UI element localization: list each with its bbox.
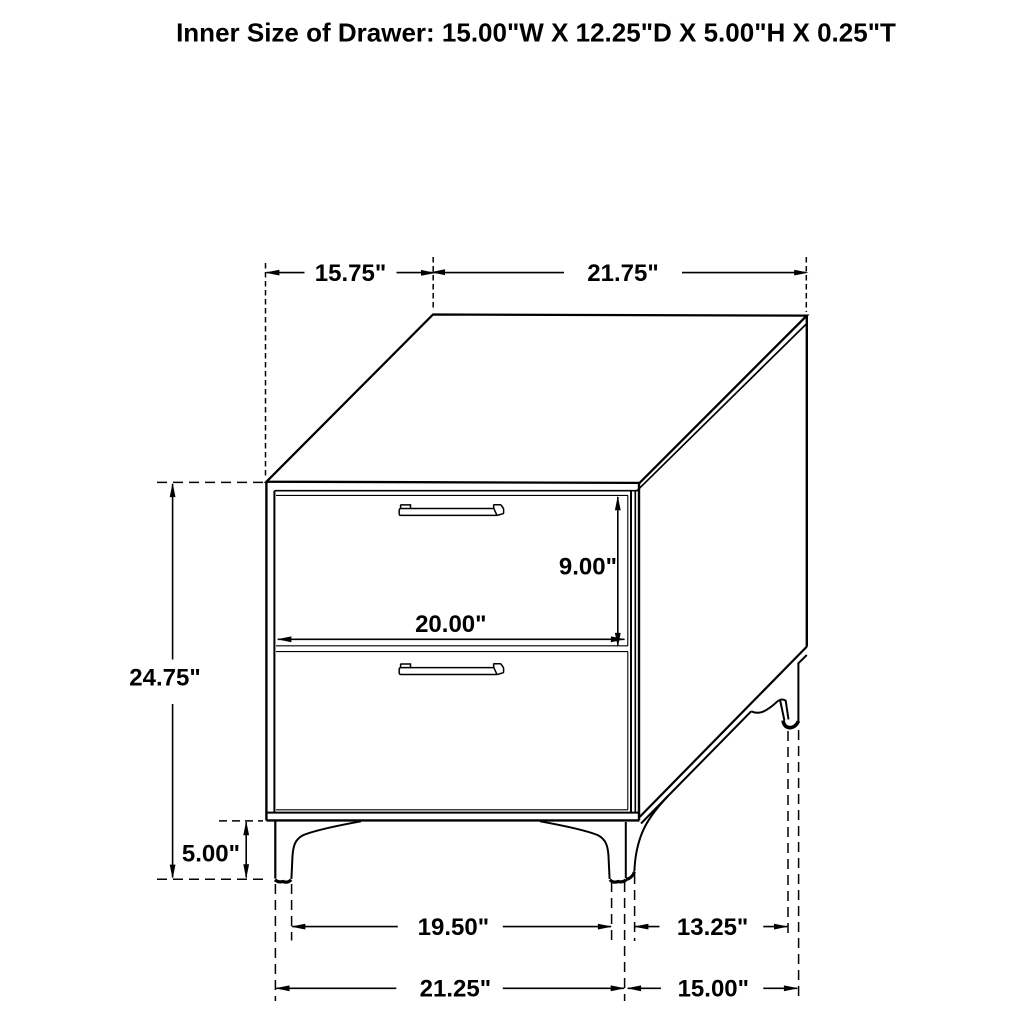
svg-text:15.00": 15.00" — [678, 976, 749, 1003]
svg-text:21.25": 21.25" — [420, 976, 491, 1003]
svg-text:9.00": 9.00" — [559, 553, 617, 580]
svg-text:21.75": 21.75" — [587, 260, 658, 287]
svg-text:Inner Size of Drawer: 15.00"W: Inner Size of Drawer: 15.00"W X 12.25"D … — [176, 17, 896, 47]
svg-text:24.75": 24.75" — [129, 665, 200, 692]
svg-text:13.25": 13.25" — [677, 914, 748, 941]
svg-text:5.00": 5.00" — [182, 841, 240, 868]
svg-text:19.50": 19.50" — [418, 914, 489, 941]
svg-text:20.00": 20.00" — [415, 611, 486, 638]
svg-text:15.75": 15.75" — [315, 260, 386, 287]
